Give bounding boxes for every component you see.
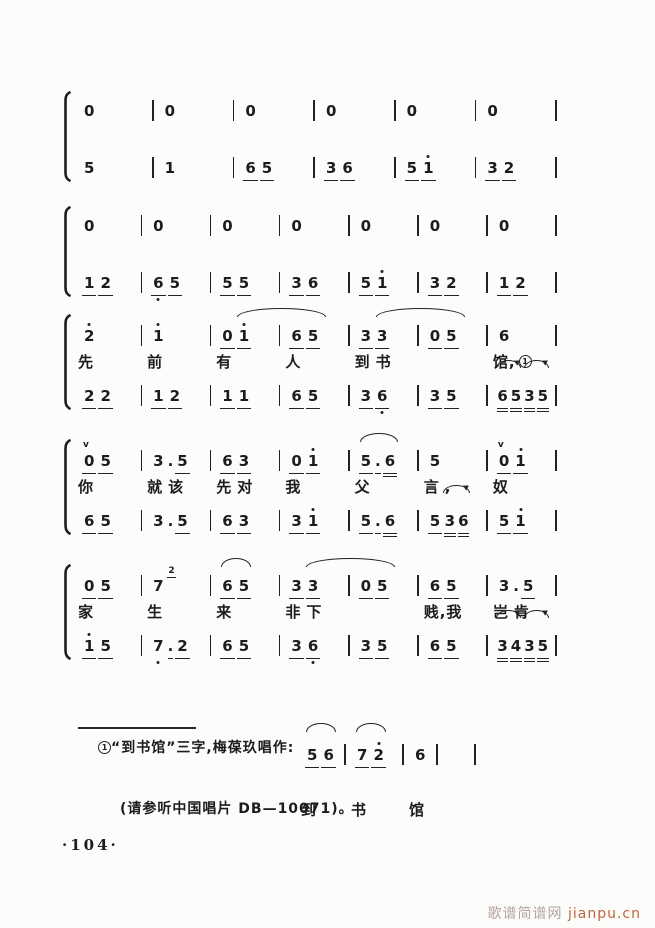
tie-arc — [306, 723, 336, 732]
lyric-cell: 先 — [73, 346, 142, 376]
note: 6 — [305, 274, 321, 293]
note: 5 — [427, 452, 443, 471]
melody-measure: 51 — [488, 501, 557, 531]
melody-measure: 36 — [315, 152, 396, 178]
melody-measure: 0 — [419, 210, 488, 236]
melody-measure: 0 — [488, 210, 557, 236]
note: 2 — [501, 159, 517, 178]
lyric-cell: 家 — [73, 596, 142, 626]
note: 72 — [150, 577, 166, 596]
note: 3 — [236, 512, 252, 531]
note: 5 — [305, 387, 321, 406]
note: 3 — [523, 637, 536, 656]
note: 5 — [97, 452, 113, 471]
note: 3 — [523, 387, 536, 406]
footnote-label: 1“到书馆”三字,梅葆玖唱作: — [95, 737, 294, 757]
barline — [555, 215, 557, 236]
melody-measure: 35 — [350, 626, 419, 656]
melody-measure: 5.6 — [350, 443, 419, 471]
note: 5 — [536, 637, 549, 656]
lyric-cell: 生 — [142, 596, 211, 626]
melody-measure: 5.6 — [350, 501, 419, 531]
note: 1 — [150, 387, 166, 406]
melody-measure: 6535 — [488, 376, 557, 406]
lyric-cell: 你 — [73, 471, 142, 501]
breath-mark: v — [83, 440, 89, 451]
note: 6 — [496, 387, 509, 406]
tie-arc — [376, 308, 465, 317]
note: 0 — [288, 217, 304, 236]
note: 0 — [358, 577, 374, 596]
note: 1 — [305, 452, 321, 471]
melody-measure: 01 — [280, 443, 349, 471]
note: 0 — [496, 217, 512, 236]
melody-measure: 36 — [280, 626, 349, 656]
octave-dot-above — [242, 323, 245, 326]
lyric-cell: 非下 — [280, 596, 349, 626]
lyric-cell: 奴 — [488, 471, 557, 501]
tie-arc — [356, 723, 386, 732]
footnote-rule — [78, 727, 196, 729]
watermark: 歌谱简谱网 jianpu.cn — [488, 903, 641, 923]
note: 5 — [443, 327, 459, 346]
melody-measure: 05 — [73, 568, 142, 596]
note: 3 — [358, 637, 374, 656]
note: 1 — [81, 274, 97, 293]
note: 5 — [305, 327, 321, 346]
melody-measure: 72 — [142, 568, 211, 596]
grace-note: 2 — [167, 567, 175, 578]
note: 0 — [81, 577, 97, 596]
note: 5 — [496, 512, 512, 531]
note: 6 — [305, 637, 321, 656]
note: 3 — [427, 274, 443, 293]
melody-measure: 33 — [350, 318, 419, 346]
note: 1 — [150, 327, 166, 346]
lyric-cell: 书 — [346, 796, 404, 822]
octave-dot-above — [88, 633, 91, 636]
melody-measure: 01 — [211, 318, 280, 346]
melody-measure — [438, 733, 476, 765]
lyric-cell: 父 — [350, 471, 419, 501]
note: 1 — [219, 387, 235, 406]
note: 3 — [150, 512, 166, 531]
note: 7 — [150, 637, 166, 656]
melody-measure: 65 — [280, 376, 349, 406]
ornament-arc — [524, 360, 549, 368]
melody-measure: 36 — [280, 267, 349, 293]
system-grid: 000000012655536513212 — [73, 210, 557, 293]
ornament-arc — [496, 610, 521, 618]
system-bracket — [60, 568, 73, 656]
note: . — [512, 577, 520, 596]
barline — [555, 385, 557, 406]
melody-measure: 72 — [346, 733, 404, 765]
melody-measure: 0 — [154, 95, 235, 121]
note: 5 — [304, 746, 320, 765]
note: 1 — [420, 159, 436, 178]
music-system: 0572653305653.5家生来非下贱,我岂肯157.26536356534… — [60, 568, 557, 656]
melody-measure: 0v1 — [488, 443, 557, 471]
melody-measure: 0 — [476, 95, 557, 121]
melody-measure: 63 — [211, 443, 280, 471]
note: 3 — [358, 387, 374, 406]
note: 3 — [288, 577, 304, 596]
note: 5 — [236, 274, 252, 293]
system-grid: 0572653305653.5家生来非下贱,我岂肯157.26536356534… — [73, 568, 557, 656]
barline — [474, 744, 476, 765]
ornament-arc — [524, 610, 549, 618]
note: 0 — [288, 452, 304, 471]
note: 5 — [536, 387, 549, 406]
melody-measure: 0v5 — [73, 443, 142, 471]
note: 6 — [457, 512, 470, 531]
melody-measure: 3.5 — [142, 443, 211, 471]
melody-measure: 0 — [280, 210, 349, 236]
melody-measure: 33 — [280, 568, 349, 596]
note: 5 — [443, 387, 459, 406]
melody-measure: 65 — [73, 501, 142, 531]
octave-dot-above — [519, 448, 522, 451]
octave-dot-above — [427, 155, 430, 158]
note: 6 — [219, 637, 235, 656]
note: 5 — [81, 159, 97, 178]
melody-measure: 36 — [350, 376, 419, 406]
note: 2 — [370, 746, 386, 765]
note: 0 — [358, 217, 374, 236]
note: 4 — [509, 637, 522, 656]
note: 5 — [358, 274, 374, 293]
note: . — [167, 452, 175, 471]
octave-dot-above — [312, 508, 315, 511]
octave-dot-below — [381, 411, 384, 414]
octave-dot-below — [157, 661, 160, 664]
music-system: 21016533056先前有人到书馆,12212116536356535 — [60, 318, 557, 406]
note: 5 — [374, 637, 390, 656]
lyric-cell: 馆 — [404, 796, 438, 822]
note: 2 — [167, 387, 183, 406]
melody-measure: 0 — [211, 210, 280, 236]
note: 5 — [443, 577, 459, 596]
melody-measure: 0 — [234, 95, 315, 121]
note: 5 — [374, 577, 390, 596]
melody-measure: 7.2 — [142, 626, 211, 656]
note: 0 — [81, 102, 97, 121]
melody-measure: 63 — [211, 501, 280, 531]
lyric-cell: 先对 — [211, 471, 280, 501]
note: 5 — [174, 452, 190, 471]
note: 0v — [81, 452, 97, 471]
note: 5 — [358, 452, 374, 471]
note: 6 — [427, 637, 443, 656]
system-grid: 21016533056先前有人到书馆,12212116536356535 — [73, 318, 557, 406]
melody-measure: 0 — [73, 95, 154, 121]
melody-measure: 2 — [73, 318, 142, 346]
note: 3 — [305, 577, 321, 596]
note: 2 — [81, 387, 97, 406]
octave-dot-below — [312, 661, 315, 664]
note: 6 — [382, 512, 398, 531]
watermark-domain: jianpu.cn — [568, 906, 641, 922]
note: 1 — [512, 452, 528, 471]
melody-measure: 1 — [154, 152, 235, 178]
melody-measure: 12 — [142, 376, 211, 406]
melody-measure: 65 — [142, 267, 211, 293]
melody-measure: 22 — [73, 376, 142, 406]
melody-measure: 32 — [419, 267, 488, 293]
tie-arc — [221, 558, 251, 567]
tie-arc — [237, 308, 326, 317]
note: 1 — [512, 512, 528, 531]
note: . — [167, 637, 175, 656]
note: 7 — [354, 746, 370, 765]
note: 5 — [236, 577, 252, 596]
melody-measure: 1 — [142, 318, 211, 346]
note: 3 — [288, 637, 304, 656]
octave-dot-below — [157, 298, 160, 301]
note: 6 — [150, 274, 166, 293]
note: 6 — [374, 387, 390, 406]
breath-mark: v — [498, 440, 504, 451]
lyric-cell: 贱,我 — [419, 596, 488, 626]
melody-measure: 5 — [419, 443, 488, 471]
note: 3 — [358, 327, 374, 346]
note: 3 — [427, 387, 443, 406]
note: . — [167, 512, 175, 531]
note: 3 — [288, 512, 304, 531]
melody-measure: 35 — [419, 376, 488, 406]
note: 1 — [305, 512, 321, 531]
note: . — [374, 512, 382, 531]
barline — [555, 100, 557, 121]
lyric-cell — [350, 596, 419, 626]
melody-measure: 0 — [142, 210, 211, 236]
lyric-cell: 就该 — [142, 471, 211, 501]
note: 0 — [219, 217, 235, 236]
melody-measure: 5 — [73, 152, 154, 178]
lyric-cell: 到书 — [350, 346, 419, 376]
note: 0 — [323, 102, 339, 121]
melody-measure: 05 — [419, 318, 488, 346]
note: 6 — [288, 387, 304, 406]
melody-measure: 15 — [73, 626, 142, 656]
melody-measure: 65 — [419, 626, 488, 656]
circled-1-marker: 1 — [98, 741, 111, 754]
note: 1 — [236, 327, 252, 346]
melody-measure: 0 — [350, 210, 419, 236]
melody-measure: 05 — [350, 568, 419, 596]
octave-dot-above — [312, 448, 315, 451]
octave-dot-above — [377, 742, 380, 745]
note: 5 — [174, 512, 190, 531]
ornament-mark — [496, 610, 549, 619]
melody-measure: 536 — [419, 501, 488, 531]
note: 0 — [242, 102, 258, 121]
note: 3 — [150, 452, 166, 471]
melody-measure: 6 — [488, 318, 557, 346]
note: 0 — [484, 102, 500, 121]
melody-measure: 6 — [404, 733, 438, 765]
note: 0 — [427, 327, 443, 346]
note: 6 — [382, 452, 398, 471]
note: 0v — [496, 452, 512, 471]
note: 5 — [167, 274, 183, 293]
lyric-cell: 前 — [142, 346, 211, 376]
note: 2 — [97, 274, 113, 293]
octave-dot-above — [88, 323, 91, 326]
note: 5 — [236, 637, 252, 656]
note: 6 — [412, 746, 428, 765]
note: 5 — [404, 159, 420, 178]
system-grid: 0v53.563015.650v1你就该先对我父言,奴653.563315.65… — [73, 443, 557, 531]
note: 2 — [81, 327, 97, 346]
melody-measure: 31 — [280, 501, 349, 531]
melody-measure: 11 — [211, 376, 280, 406]
note: 6 — [427, 577, 443, 596]
melody-measure: 0 — [315, 95, 396, 121]
note: 1 — [496, 274, 512, 293]
note: 5 — [509, 387, 522, 406]
watermark-site-name: 歌谱简谱网 — [488, 906, 563, 922]
note: 6 — [320, 746, 336, 765]
lyric-cell: 我 — [280, 471, 349, 501]
note: 3 — [236, 452, 252, 471]
lyric-cell: 有 — [211, 346, 280, 376]
melody-measure: 12 — [488, 267, 557, 293]
note: 5 — [358, 512, 374, 531]
octave-dot-above — [381, 270, 384, 273]
music-system: 0000005165365132 — [60, 95, 557, 178]
melody-measure: 3435 — [488, 626, 557, 656]
note: 5 — [259, 159, 275, 178]
system-bracket — [60, 210, 73, 293]
note: 6 — [219, 512, 235, 531]
melody-measure: 65 — [234, 152, 315, 178]
note: 0 — [427, 217, 443, 236]
note: 6 — [81, 512, 97, 531]
ornament-mark — [496, 360, 549, 369]
note: 5 — [219, 274, 235, 293]
note: 5 — [520, 577, 536, 596]
lyric-cell — [419, 346, 488, 376]
note: 1 — [162, 159, 178, 178]
note: 0 — [150, 217, 166, 236]
melody-measure: 55 — [211, 267, 280, 293]
note: 2 — [97, 387, 113, 406]
octave-dot-above — [519, 508, 522, 511]
ornament-arc — [496, 360, 521, 368]
note: 3 — [484, 159, 500, 178]
score-page: 0000005165365132000000012655536513212210… — [0, 0, 655, 928]
note: 5 — [443, 637, 459, 656]
system-bracket — [60, 318, 73, 406]
barline — [555, 575, 557, 596]
note: 0 — [219, 327, 235, 346]
note: 3 — [323, 159, 339, 178]
note: 0 — [162, 102, 178, 121]
page-number: ·104· — [62, 836, 119, 854]
melody-measure: 65 — [280, 318, 349, 346]
note: 3 — [443, 512, 456, 531]
ornament-mark — [443, 485, 470, 494]
note: 1 — [236, 387, 252, 406]
note: 2 — [174, 637, 190, 656]
music-system: 000000012655536513212 — [60, 210, 557, 293]
melody-measure: 0 — [396, 95, 477, 121]
ornament-arc — [443, 485, 470, 493]
music-system: 0v53.563015.650v1你就该先对我父言,奴653.563315.65… — [60, 443, 557, 531]
note: 5 — [97, 512, 113, 531]
note: 5 — [427, 512, 443, 531]
melody-measure: 0 — [73, 210, 142, 236]
note: 6 — [496, 327, 512, 346]
melody-measure: 51 — [350, 267, 419, 293]
note: 6 — [242, 159, 258, 178]
melody-measure: 65 — [211, 626, 280, 656]
note: 5 — [97, 637, 113, 656]
note: 3 — [496, 637, 509, 656]
note: 3 — [374, 327, 390, 346]
note: 6 — [219, 452, 235, 471]
note: 1 — [374, 274, 390, 293]
note: . — [374, 452, 382, 471]
note: 6 — [219, 577, 235, 596]
note: 2 — [512, 274, 528, 293]
melody-measure: 65 — [211, 568, 280, 596]
note: 2 — [443, 274, 459, 293]
tie-arc — [360, 433, 398, 442]
barline — [555, 272, 557, 293]
melody-measure: 12 — [73, 267, 142, 293]
octave-dot-above — [157, 323, 160, 326]
barline — [555, 325, 557, 346]
melody-measure: 3.5 — [488, 568, 557, 596]
melody-measure: 51 — [396, 152, 477, 178]
tie-arc — [306, 558, 395, 567]
note: 5 — [97, 577, 113, 596]
note: 6 — [288, 327, 304, 346]
note: 6 — [339, 159, 355, 178]
barline — [555, 510, 557, 531]
lyric-cell: 来 — [211, 596, 280, 626]
melody-measure: 56 — [296, 733, 346, 765]
system-grid: 0000005165365132 — [73, 95, 557, 178]
footnote-record-note: (请参听中国唱片 DB—10071)。 — [120, 798, 354, 818]
note: 0 — [81, 217, 97, 236]
melody-measure: 32 — [476, 152, 557, 178]
melody-measure: 65 — [419, 568, 488, 596]
lyric-cell — [438, 796, 476, 822]
barline — [555, 450, 557, 471]
barline — [555, 635, 557, 656]
lyric-cell: 人 — [280, 346, 349, 376]
note: 1 — [81, 637, 97, 656]
melody-measure: 3.5 — [142, 501, 211, 531]
note: 0 — [404, 102, 420, 121]
system-bracket — [60, 95, 73, 178]
note: 3 — [288, 274, 304, 293]
barline — [555, 157, 557, 178]
system-bracket — [60, 443, 73, 531]
note: 3 — [496, 577, 512, 596]
